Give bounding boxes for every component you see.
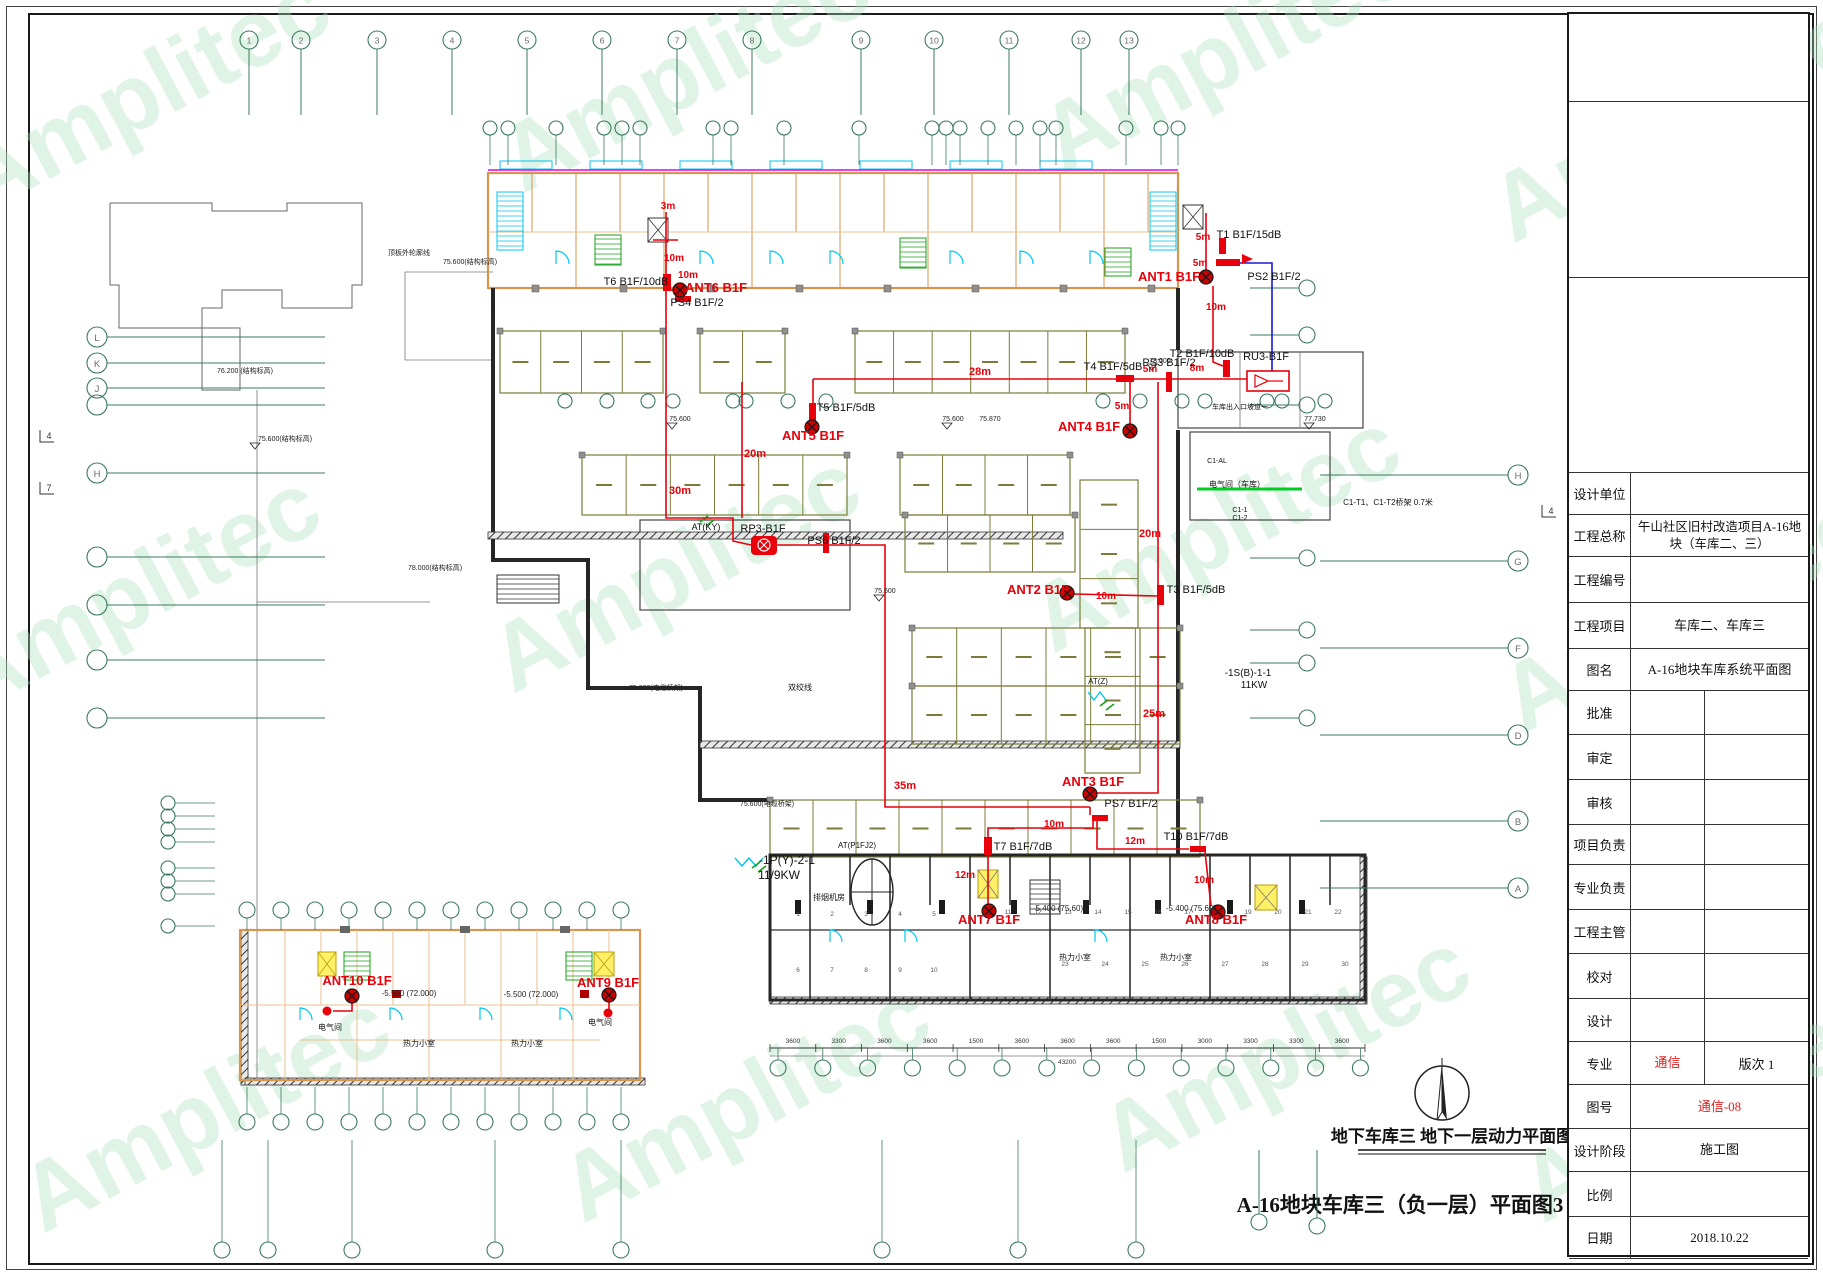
dim-value: 3000 bbox=[1198, 1038, 1213, 1045]
column bbox=[909, 625, 915, 631]
title-block-value2 bbox=[1704, 825, 1808, 864]
grid-bubble bbox=[375, 1114, 391, 1130]
elevation-label: -5.500 (72.000) bbox=[382, 989, 437, 998]
red-label: 5m bbox=[1115, 401, 1130, 412]
grid-bubble bbox=[706, 121, 720, 135]
title-block-value bbox=[1631, 910, 1704, 953]
red-label: 25m bbox=[1143, 708, 1165, 720]
grid-bubble bbox=[344, 1242, 360, 1258]
column bbox=[1060, 285, 1067, 292]
grid-bubble bbox=[777, 121, 791, 135]
title-block-label: 图名 bbox=[1569, 649, 1631, 690]
device-label: 11KW bbox=[1241, 680, 1268, 691]
device-label: RP3-B1F bbox=[740, 523, 786, 535]
coupler-device bbox=[1190, 846, 1206, 852]
elevation-label: 75.600(电缆桥架) bbox=[740, 799, 794, 808]
device-label: 热力小室 bbox=[1160, 952, 1192, 962]
room-number: 10 bbox=[930, 967, 938, 974]
sheet-title: A-16地块车库三（负一层）平面图3 bbox=[1237, 1193, 1564, 1217]
title-block-label: 设计阶段 bbox=[1569, 1129, 1631, 1171]
title-block-value: 2018.10.22 bbox=[1631, 1217, 1808, 1258]
coupler-device bbox=[1223, 360, 1230, 377]
title-block-row-工程主管: 工程主管 bbox=[1569, 910, 1808, 954]
door-arc bbox=[770, 251, 783, 264]
title-block-label: 日期 bbox=[1569, 1217, 1631, 1258]
grid-bubble bbox=[273, 902, 289, 918]
dim-value: 3600 bbox=[1335, 1038, 1350, 1045]
grid-bubble bbox=[1299, 622, 1315, 638]
title-block-row-设计: 设计 bbox=[1569, 999, 1808, 1042]
red-box bbox=[580, 990, 589, 998]
device-label: T3 B1F/5dB bbox=[1167, 584, 1226, 596]
grid-bubble-label: G bbox=[1514, 557, 1521, 568]
dim-value: 3300 bbox=[831, 1038, 846, 1045]
room-number: 23 bbox=[1061, 961, 1069, 968]
elevation-label: 75.600 bbox=[874, 588, 896, 595]
red-label: ANT3 B1F bbox=[1062, 774, 1124, 789]
title-block-label: 设计单位 bbox=[1569, 473, 1631, 514]
red-label: ANT7 B1F bbox=[958, 912, 1020, 927]
red-label: 10m bbox=[1044, 819, 1064, 830]
title-block-row-专业: 专业通信版次 1 bbox=[1569, 1042, 1808, 1085]
door-arc bbox=[480, 1008, 492, 1020]
grid-bubble bbox=[641, 394, 655, 408]
device-label: T10 B1F/7dB bbox=[1164, 831, 1229, 843]
title-block-row-专业负责: 专业负责 bbox=[1569, 865, 1808, 910]
title-block-value2: 版次 1 bbox=[1704, 1042, 1808, 1084]
red-label: 5m bbox=[1196, 232, 1211, 243]
column bbox=[1177, 683, 1183, 689]
compass-needle bbox=[1437, 1066, 1442, 1120]
room-number: 30 bbox=[1341, 961, 1349, 968]
grid-bubble-label: F bbox=[1515, 644, 1521, 655]
door-arc bbox=[905, 930, 917, 942]
stairs bbox=[900, 238, 926, 268]
room-number: 29 bbox=[1301, 961, 1309, 968]
device-label: 排烟机房 bbox=[813, 892, 845, 902]
grid-bubble bbox=[409, 902, 425, 918]
elevation-label: 顶板外轮廓线 bbox=[388, 248, 430, 257]
red-label: ANT6 B1F bbox=[685, 280, 747, 295]
elevation-label: 76.200 (结构标高) bbox=[217, 366, 273, 375]
red-dot bbox=[604, 1009, 613, 1018]
grid-bubble-label: 8 bbox=[750, 35, 755, 45]
watermark: Amplitec bbox=[3, 971, 407, 1253]
title-block-label: 校对 bbox=[1569, 954, 1631, 998]
red-label: ANT2 B1F bbox=[1007, 582, 1069, 597]
title-block-value bbox=[1631, 1172, 1808, 1216]
balcony bbox=[860, 161, 912, 169]
grid-bubble-label: 7 bbox=[675, 35, 680, 45]
title-block-value2 bbox=[1704, 865, 1808, 909]
room-number: 7 bbox=[830, 967, 834, 974]
coupler-device bbox=[1092, 815, 1108, 821]
title-block-value: 施工图 bbox=[1631, 1129, 1808, 1171]
room-number: 15 bbox=[1124, 909, 1132, 916]
red-label: ANT9 B1F bbox=[577, 975, 639, 990]
title-block-row-设计单位: 设计单位 bbox=[1569, 473, 1808, 515]
title-block-label: 工程编号 bbox=[1569, 557, 1631, 602]
grid-bubble bbox=[1039, 1060, 1055, 1076]
room-number: 22 bbox=[1334, 909, 1342, 916]
device-label: 双绞线 bbox=[788, 682, 812, 692]
title-block-label: 审核 bbox=[1569, 780, 1631, 824]
column bbox=[497, 328, 503, 334]
grid-bubble bbox=[953, 121, 967, 135]
grid-bubble bbox=[443, 1114, 459, 1130]
dim-value: 1500 bbox=[969, 1038, 984, 1045]
title-block-label: 比例 bbox=[1569, 1172, 1631, 1216]
red-label: ANT4 B1F bbox=[1058, 419, 1120, 434]
red-label: ANT8 B1F bbox=[1185, 912, 1247, 927]
grid-bubble bbox=[781, 394, 795, 408]
room-number: 27 bbox=[1221, 961, 1229, 968]
green-tick bbox=[1106, 704, 1114, 710]
elevation-marker bbox=[667, 423, 677, 429]
red-label: 10m bbox=[1194, 875, 1214, 886]
device-label: PS6 B1F/2 bbox=[807, 535, 860, 547]
wall-block bbox=[560, 926, 570, 933]
door-arc bbox=[950, 251, 963, 264]
grid-bubble bbox=[511, 1114, 527, 1130]
device-label: C1-1 bbox=[1232, 507, 1247, 514]
title-block: 设计单位工程总称午山社区旧村改造项目A-16地块（车库二、三）工程编号工程项目车… bbox=[1567, 12, 1810, 1257]
room-number: 25 bbox=[1141, 961, 1149, 968]
title-block-row-图名: 图名A-16地块车库系统平面图 bbox=[1569, 649, 1808, 691]
title-block-value2 bbox=[1704, 691, 1808, 734]
grid-bubble-label: D bbox=[1515, 731, 1522, 742]
match-mark-label: 4 bbox=[46, 431, 51, 441]
title-block-value2 bbox=[1704, 954, 1808, 998]
wall-block bbox=[340, 926, 350, 933]
title-block-row-日期: 日期2018.10.22 bbox=[1569, 1217, 1808, 1259]
grid-bubble bbox=[1275, 394, 1289, 408]
grid-bubble-label: K bbox=[94, 359, 101, 370]
door-arc bbox=[556, 251, 569, 264]
grid-bubble bbox=[558, 394, 572, 408]
grid-bubble-label: H bbox=[1515, 471, 1522, 482]
column bbox=[902, 512, 908, 518]
title-block-row-工程项目: 工程项目车库二、车库三 bbox=[1569, 603, 1808, 649]
title-block-label: 审定 bbox=[1569, 735, 1631, 779]
room-number: 3 bbox=[864, 911, 868, 918]
title-block-row-项目负责: 项目负责 bbox=[1569, 825, 1808, 865]
room-number: 8 bbox=[864, 967, 868, 974]
title-block-value bbox=[1631, 825, 1704, 864]
column bbox=[1122, 328, 1128, 334]
red-label: 5m bbox=[1193, 258, 1208, 269]
device-label: AT(P1FJ2) bbox=[838, 841, 876, 850]
grid-bubble bbox=[1299, 280, 1315, 296]
device-label: T4 B1F/5dB bbox=[1084, 361, 1143, 373]
title-block-value: 午山社区旧村改造项目A-16地块（车库二、三） bbox=[1631, 515, 1808, 556]
title-block-value bbox=[1631, 865, 1704, 909]
grid-bubble bbox=[307, 1114, 323, 1130]
grid-bubble bbox=[161, 919, 175, 933]
grid-bubble-label: 4 bbox=[450, 35, 455, 45]
device-label: 车库出入口坡道一 bbox=[1212, 402, 1268, 411]
grid-bubble-label: 6 bbox=[600, 35, 605, 45]
coupler-device bbox=[1116, 375, 1134, 382]
column bbox=[897, 452, 903, 458]
grid-bubble-label: 9 bbox=[859, 35, 864, 45]
grid-bubble-label: 13 bbox=[1124, 35, 1134, 45]
green-tick bbox=[1100, 700, 1108, 706]
title-block-row-校对: 校对 bbox=[1569, 954, 1808, 999]
column bbox=[1072, 512, 1078, 518]
compass-needle bbox=[1442, 1066, 1447, 1120]
column bbox=[884, 285, 891, 292]
grid-bubble bbox=[161, 809, 175, 823]
red-label: 20m bbox=[1139, 528, 1161, 540]
device-label: T5 B1F/5dB bbox=[817, 402, 876, 414]
column bbox=[852, 328, 858, 334]
grid-bubble-label: 12 bbox=[1076, 35, 1086, 45]
column bbox=[579, 452, 585, 458]
device-label: 热力小室 bbox=[511, 1038, 543, 1048]
grid-bubble-label: J bbox=[95, 384, 100, 395]
grid-bubble bbox=[375, 902, 391, 918]
title-block-value bbox=[1631, 473, 1808, 514]
grid-bubble bbox=[949, 1060, 965, 1076]
grid-bubble bbox=[87, 708, 107, 728]
grid-bubble-label: 10 bbox=[929, 35, 939, 45]
title-block-row-审定: 审定 bbox=[1569, 735, 1808, 780]
room-number: 5 bbox=[932, 911, 936, 918]
title-block-value bbox=[1631, 780, 1704, 824]
dim-value: 3600 bbox=[923, 1038, 938, 1045]
grid-bubble bbox=[1133, 394, 1147, 408]
door-arc bbox=[390, 1008, 402, 1020]
door-arc bbox=[1095, 930, 1107, 942]
grid-bubble bbox=[545, 902, 561, 918]
elevation-label: 78.000(结构标高) bbox=[408, 563, 462, 572]
device-label: 电气间 bbox=[318, 1022, 342, 1032]
grid-bubble-label: 3 bbox=[375, 35, 380, 45]
room-number: 1 bbox=[796, 911, 800, 918]
grid-bubble-label: 1 bbox=[247, 35, 252, 45]
grid-bubble bbox=[341, 902, 357, 918]
door-arc bbox=[1020, 251, 1033, 264]
grid-bubble bbox=[600, 394, 614, 408]
title-block-row-比例: 比例 bbox=[1569, 1172, 1808, 1217]
grid-bubble bbox=[579, 902, 595, 918]
grid-bubble bbox=[1299, 550, 1315, 566]
balcony bbox=[680, 161, 732, 169]
title-block-value: 车库二、车库三 bbox=[1631, 603, 1808, 648]
elevation-label: 75.600(电缆桥架) bbox=[629, 683, 683, 692]
grid-bubble bbox=[739, 394, 753, 408]
elevation-label: 75.600(结构标高) bbox=[443, 257, 497, 266]
red-dot bbox=[323, 1007, 332, 1016]
device-label: 热力小室 bbox=[1059, 952, 1091, 962]
grid-bubble-label: L bbox=[94, 333, 99, 344]
grid-bubble bbox=[726, 394, 740, 408]
title-block-row-批准: 批准 bbox=[1569, 691, 1808, 735]
device-label: 电气间 bbox=[588, 1017, 612, 1027]
grid-bubble bbox=[161, 861, 175, 875]
grid-bubble bbox=[161, 796, 175, 810]
grid-bubble bbox=[477, 902, 493, 918]
grid-bubble bbox=[443, 902, 459, 918]
elevation-marker bbox=[874, 595, 884, 601]
grid-bubble bbox=[161, 874, 175, 888]
door-arc bbox=[830, 930, 842, 942]
stairs bbox=[595, 235, 621, 265]
device-label: PS7 B1F/2 bbox=[1104, 798, 1157, 810]
red-label: 3m bbox=[661, 201, 676, 212]
red-label: ANT5 B1F bbox=[782, 428, 844, 443]
grid-bubble bbox=[939, 121, 953, 135]
dim-value: 3300 bbox=[1289, 1038, 1304, 1045]
device-label: T6 B1F/10dB bbox=[604, 276, 669, 288]
title-block-label: 专业负责 bbox=[1569, 865, 1631, 909]
grid-bubble bbox=[511, 902, 527, 918]
dim-total: 43200 bbox=[1058, 1059, 1076, 1066]
title-block-blank-cell-3 bbox=[1569, 278, 1808, 473]
room-number: 9 bbox=[898, 967, 902, 974]
column bbox=[1148, 285, 1155, 292]
title-block-blank-cell-1 bbox=[1569, 14, 1808, 102]
match-mark-label: 4 bbox=[1548, 506, 1553, 516]
room-number: 21 bbox=[1304, 909, 1312, 916]
grid-bubble bbox=[852, 121, 866, 135]
door-arc bbox=[700, 251, 713, 264]
title-block-row-审核: 审核 bbox=[1569, 780, 1808, 825]
grid-bubble bbox=[925, 121, 939, 135]
device-label: C1-T1、C1-T2桥架 0.7米 bbox=[1343, 497, 1433, 507]
room-number: 28 bbox=[1261, 961, 1269, 968]
device-label: PS2 B1F/2 bbox=[1247, 271, 1300, 283]
coupler-device bbox=[1166, 372, 1172, 392]
grid-bubble bbox=[341, 1114, 357, 1130]
plan-canvas: AmplitecAmplitecAmplitecAmplitecAmplitec… bbox=[0, 0, 1823, 1276]
red-label: 10m bbox=[1096, 591, 1116, 602]
grid-bubble bbox=[1318, 394, 1332, 408]
elevation-marker bbox=[942, 423, 952, 429]
column bbox=[697, 328, 703, 334]
grid-bubble bbox=[1299, 397, 1315, 413]
grid-bubble bbox=[477, 1114, 493, 1130]
grid-bubble bbox=[1299, 710, 1315, 726]
title-block-row-设计阶段: 设计阶段施工图 bbox=[1569, 1129, 1808, 1172]
grid-bubble bbox=[1128, 1242, 1144, 1258]
grid-bubble bbox=[724, 121, 738, 135]
red-label: 28m bbox=[969, 366, 991, 378]
room-number: 14 bbox=[1094, 909, 1102, 916]
title-block-label: 批准 bbox=[1569, 691, 1631, 734]
grid-bubble bbox=[981, 121, 995, 135]
grid-bubble bbox=[874, 1242, 890, 1258]
title-block-label: 工程项目 bbox=[1569, 603, 1631, 648]
door-arc bbox=[560, 1008, 572, 1020]
room-number: 6 bbox=[796, 967, 800, 974]
title-block-value2 bbox=[1704, 999, 1808, 1041]
elevation-label: 75.870 bbox=[979, 416, 1001, 423]
title-block-value2 bbox=[1704, 735, 1808, 779]
device-label: RU3-B1F bbox=[1243, 351, 1289, 363]
dim-value: 3600 bbox=[877, 1038, 892, 1045]
grid-bubble bbox=[1096, 394, 1110, 408]
device-label: 热力小室 bbox=[403, 1038, 435, 1048]
grid-bubble-label: H bbox=[94, 469, 101, 480]
elevation-label: -5.500 (72.000) bbox=[504, 990, 559, 999]
device-label: 电气间（车库） bbox=[1209, 479, 1265, 489]
grid-bubble bbox=[666, 394, 680, 408]
wall-block bbox=[939, 900, 945, 914]
title-block-label: 图号 bbox=[1569, 1085, 1631, 1128]
grid-bubble bbox=[994, 1060, 1010, 1076]
door-arc bbox=[830, 251, 843, 264]
device-label: -1P(Y)-2-1 bbox=[759, 853, 815, 867]
grid-bubble bbox=[1299, 655, 1315, 671]
title-block-value2 bbox=[1704, 910, 1808, 953]
title-block-value bbox=[1631, 691, 1704, 734]
red-label: 12m bbox=[955, 870, 975, 881]
elevation-label: 75.600 bbox=[942, 416, 964, 423]
title-block-label: 工程总称 bbox=[1569, 515, 1631, 556]
elevation-label: 75.600 bbox=[669, 416, 691, 423]
coupler-device bbox=[1216, 259, 1240, 266]
wall-block bbox=[1083, 900, 1089, 914]
coupler-device bbox=[809, 403, 816, 421]
device-label: AT(KY) bbox=[692, 522, 721, 532]
title-block-value bbox=[1631, 999, 1704, 1041]
red-label: ANT1 B1F bbox=[1138, 269, 1200, 284]
grid-bubble bbox=[1084, 1060, 1100, 1076]
door-arc bbox=[1090, 251, 1103, 264]
grid-bubble bbox=[1299, 327, 1315, 343]
room-number: 24 bbox=[1101, 961, 1109, 968]
dim-value: 3600 bbox=[1060, 1038, 1075, 1045]
grid-bubble bbox=[1009, 121, 1023, 135]
watermark: Amplitec bbox=[1023, 0, 1427, 193]
elevation-label: -5.400 (75.60) bbox=[1166, 904, 1217, 913]
device-label: AT(Z) bbox=[1088, 677, 1108, 686]
title-block-value bbox=[1631, 735, 1704, 779]
watermark: Amplitec bbox=[0, 0, 347, 233]
title-block-label: 项目负责 bbox=[1569, 825, 1631, 864]
dim-value: 3600 bbox=[1014, 1038, 1029, 1045]
red-label: 12m bbox=[1125, 836, 1145, 847]
red-label: 35m bbox=[894, 780, 916, 792]
title-block-label: 设计 bbox=[1569, 999, 1631, 1041]
dim-value: 3600 bbox=[786, 1038, 801, 1045]
column bbox=[796, 285, 803, 292]
grid-bubble bbox=[545, 1114, 561, 1130]
column bbox=[782, 328, 788, 334]
grid-bubble bbox=[1198, 394, 1212, 408]
device-label: C1-AL bbox=[1207, 458, 1227, 465]
dim-value: 3300 bbox=[1243, 1038, 1258, 1045]
column bbox=[1197, 797, 1203, 803]
column bbox=[532, 285, 539, 292]
title-block-value: 通信 bbox=[1631, 1042, 1704, 1084]
red-label: ANT10 B1F bbox=[322, 973, 391, 988]
hatched-wall bbox=[241, 930, 248, 1085]
grid-bubble-label: 5 bbox=[525, 35, 530, 45]
grid-bubble-label: 11 bbox=[1005, 35, 1014, 45]
column bbox=[1177, 625, 1183, 631]
device-label: T1 B1F/15dB bbox=[1217, 229, 1282, 241]
watermark: Amplitec bbox=[473, 431, 877, 713]
device-label: C1-2 bbox=[1232, 515, 1247, 522]
title-block-value2 bbox=[1704, 780, 1808, 824]
red-label: 20m bbox=[744, 448, 766, 460]
dim-value: 3600 bbox=[1106, 1038, 1121, 1045]
grid-bubble bbox=[307, 902, 323, 918]
wall-block bbox=[460, 926, 470, 933]
